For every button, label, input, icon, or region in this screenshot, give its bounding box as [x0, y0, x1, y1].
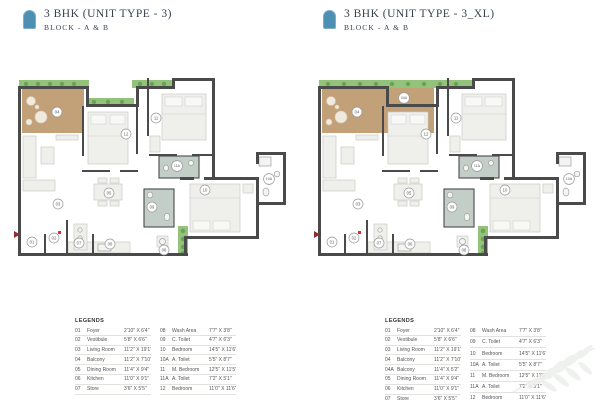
legends-left: LEGENDS 01Foyer2'10" X 6'4"02Vestibule5'…: [75, 318, 237, 395]
room-label: 10A: [564, 174, 575, 185]
legend-cell: 01: [75, 326, 87, 335]
legend-cell: 3'6" X 5'5": [434, 394, 461, 400]
legend-row: 01Foyer2'10" X 6'4": [75, 326, 151, 335]
legend-cell: 11'2" X 19'1": [124, 345, 151, 355]
legend-cell: 2'10" X 6'4": [124, 326, 151, 335]
legend-row: 10Bedroom14'5" X 11'6": [160, 345, 236, 355]
svg-text:02: 02: [352, 236, 357, 241]
svg-text:01: 01: [30, 240, 35, 245]
legend-row: 12Bedroom11'0" X 11'6": [160, 384, 236, 394]
legend-cell: 10: [160, 345, 172, 355]
bed-icon: [150, 94, 206, 152]
legend-cell: 5'8" X 6'6": [124, 335, 151, 345]
legend-cell: 11: [160, 365, 172, 375]
svg-text:04: 04: [55, 110, 60, 115]
plan-header-right: 3 BHK (UNIT TYPE - 3_XL) BLOCK - A & B: [323, 8, 495, 32]
room-label: 10: [500, 185, 510, 195]
svg-text:08: 08: [462, 248, 467, 253]
legend-row: 07Store3'6" X 5'5": [75, 384, 151, 394]
legend-cell: Balcony: [87, 355, 124, 365]
svg-text:11A: 11A: [174, 164, 181, 168]
legend-cell: 05: [75, 365, 87, 375]
legend-row: 04Balcony11'2" X 7'10": [385, 355, 461, 365]
room-label: 02: [49, 233, 59, 243]
legend-cell: 2'10" X 6'4": [434, 326, 461, 335]
legend-cell: Dining Room: [397, 374, 434, 384]
legend-cell: 09: [470, 337, 482, 348]
room-label: 03: [353, 199, 363, 209]
legend-cell: 08: [470, 326, 482, 337]
svg-text:11A: 11A: [474, 164, 481, 168]
room-label: 06: [405, 239, 415, 249]
floor-plan-unit-3: 01 02 03 04 05 06 07 08 09 10 10A 11 11A…: [14, 74, 294, 286]
room-label: 11A: [472, 161, 483, 172]
legend-cell: Bedroom: [172, 384, 209, 394]
room-label: 05: [404, 188, 414, 198]
svg-text:09: 09: [450, 205, 455, 210]
room-label: 12: [121, 129, 131, 139]
room-label: 04A: [399, 93, 410, 104]
legend-cell: Foyer: [87, 326, 124, 335]
svg-text:11: 11: [154, 116, 159, 121]
sofa-icon: [23, 135, 78, 191]
legend-cell: Living Room: [87, 345, 124, 355]
svg-text:05: 05: [107, 191, 112, 196]
legend-cell: 5'5" X 8'7": [209, 355, 236, 365]
legend-cell: Vestibule: [397, 335, 434, 345]
legend-cell: Bedroom: [172, 345, 209, 355]
svg-text:07: 07: [377, 241, 382, 246]
room-label: 09: [447, 202, 457, 212]
legend-row: 08Wash Area7'7" X 3'8": [160, 326, 236, 335]
legend-row: 03Living Room11'2" X 19'1": [75, 345, 151, 355]
svg-text:12: 12: [424, 132, 429, 137]
legend-cell: 11'2" X 19'1": [434, 345, 461, 355]
floor-plan-svg: 01 02 03 04 05 06 07 08 09 10 10A 11 11A…: [14, 74, 294, 286]
room-label: 07: [74, 238, 84, 248]
bed-icon: [450, 94, 506, 152]
bed-icon: [88, 112, 128, 164]
room-label: 08: [159, 245, 169, 255]
svg-text:03: 03: [356, 202, 361, 207]
legend-cell: 12'5" X 11'5": [209, 365, 236, 375]
svg-text:05: 05: [407, 191, 412, 196]
legend-cell: 11A: [160, 374, 172, 384]
arch-door-icon: [323, 10, 336, 29]
door-marker-icon: [358, 231, 361, 234]
legend-cell: 01: [385, 326, 397, 335]
legend-cell: 7'7" X 3'8": [209, 326, 236, 335]
block-subtitle: BLOCK - A & B: [344, 23, 495, 32]
palm-frond-watermark: [505, 330, 600, 400]
svg-text:10: 10: [203, 188, 208, 193]
legend-cell: 04: [75, 355, 87, 365]
legend-cell: Vestibule: [87, 335, 124, 345]
room-label: 06: [105, 239, 115, 249]
legend-cell: M. Bedroom: [172, 365, 209, 375]
legend-row: 05Dining Room11'4" X 9'4": [75, 365, 151, 375]
svg-text:01: 01: [330, 240, 335, 245]
legends-table: 08Wash Area7'7" X 3'8"09C. Toilet4'7" X …: [160, 326, 236, 395]
legend-cell: 07: [75, 384, 87, 394]
legend-row: 06Kitchen11'0" X 9'1": [75, 374, 151, 384]
arch-door-icon: [23, 10, 36, 29]
legend-row: 04Balcony11'2" X 7'10": [75, 355, 151, 365]
legend-cell: 08: [160, 326, 172, 335]
legend-cell: 06: [75, 374, 87, 384]
room-label: 10A: [264, 174, 275, 185]
legend-row: 10AA. Toilet5'5" X 8'7": [160, 355, 236, 365]
legend-cell: Balcony: [397, 365, 434, 375]
svg-text:12: 12: [124, 132, 129, 137]
legend-cell: 11'2" X 7'10": [434, 355, 461, 365]
room-label: 11A: [172, 161, 183, 172]
legend-cell: 12: [470, 393, 482, 400]
legend-cell: 07: [385, 394, 397, 400]
svg-text:04A: 04A: [401, 96, 408, 100]
legend-row: 02Vestibule5'8" X 6'6": [385, 335, 461, 345]
room-label: 11: [451, 113, 461, 123]
legend-cell: 05: [385, 374, 397, 384]
room-label: 05: [104, 188, 114, 198]
legend-cell: 10: [470, 348, 482, 359]
legend-cell: 14'5" X 11'6": [209, 345, 236, 355]
legend-cell: 11: [470, 370, 482, 381]
legends-title: LEGENDS: [75, 318, 237, 324]
legend-cell: 11'0" X 9'1": [124, 374, 151, 384]
legend-cell: Kitchen: [87, 374, 124, 384]
legend-cell: Foyer: [397, 326, 434, 335]
legend-row: 03Living Room11'2" X 19'1": [385, 345, 461, 355]
bed-icon: [490, 184, 553, 232]
svg-text:09: 09: [150, 205, 155, 210]
legend-cell: C. Toilet: [172, 335, 209, 345]
legend-cell: 7'2" X 5'1": [209, 374, 236, 384]
svg-text:10: 10: [503, 188, 508, 193]
legend-cell: Balcony: [397, 355, 434, 365]
legend-cell: 11'2" X 7'10": [124, 355, 151, 365]
svg-text:11: 11: [454, 116, 459, 121]
svg-text:10A: 10A: [266, 177, 273, 181]
legend-cell: 04A: [385, 365, 397, 375]
legend-row: 07Store3'6" X 5'5": [385, 394, 461, 400]
legend-cell: Store: [87, 384, 124, 394]
room-label: 02: [349, 233, 359, 243]
legend-cell: 12: [160, 384, 172, 394]
bed-icon: [190, 184, 253, 232]
legend-row: 01Foyer2'10" X 6'4": [385, 326, 461, 335]
page-title: 3 BHK (UNIT TYPE - 3): [44, 8, 172, 21]
legend-row: 05Dining Room11'4" X 9'4": [385, 374, 461, 384]
room-label: 12: [421, 129, 431, 139]
svg-text:06: 06: [108, 242, 113, 247]
legend-cell: 09: [160, 335, 172, 345]
legend-cell: 03: [75, 345, 87, 355]
legend-row: 11AA. Toilet7'2" X 5'1": [160, 374, 236, 384]
svg-text:06: 06: [408, 242, 413, 247]
legend-cell: 11'4" X 9'4": [124, 365, 151, 375]
room-label: 04: [52, 107, 62, 117]
legend-cell: 5'8" X 6'6": [434, 335, 461, 345]
floor-plan-svg: 01 02 03 04 04A 05 06 07 08 09 10 10A 11…: [314, 74, 594, 286]
legend-cell: Wash Area: [172, 326, 209, 335]
legend-cell: 04: [385, 355, 397, 365]
sofa-icon: [323, 135, 378, 191]
door-marker-icon: [58, 231, 61, 234]
legend-cell: A. Toilet: [172, 374, 209, 384]
legends-table: 01Foyer2'10" X 6'4"02Vestibule5'8" X 6'6…: [385, 326, 461, 400]
legend-cell: 02: [75, 335, 87, 345]
legends-title: LEGENDS: [385, 318, 547, 324]
svg-text:03: 03: [56, 202, 61, 207]
legend-cell: 11'0" X 11'6": [209, 384, 236, 394]
legend-cell: Dining Room: [87, 365, 124, 375]
legends-table: 01Foyer2'10" X 6'4"02Vestibule5'8" X 6'6…: [75, 326, 151, 395]
legend-row: 11M. Bedroom12'5" X 11'5": [160, 365, 236, 375]
legend-row: 06Kitchen11'0" X 9'1": [385, 384, 461, 394]
legend-cell: A. Toilet: [172, 355, 209, 365]
legend-cell: 06: [385, 384, 397, 394]
floor-plan-unit-3xl: 01 02 03 04 04A 05 06 07 08 09 10 10A 11…: [314, 74, 594, 286]
svg-text:07: 07: [77, 241, 82, 246]
legend-cell: 03: [385, 345, 397, 355]
block-subtitle: BLOCK - A & B: [44, 23, 172, 32]
room-label: 08: [459, 245, 469, 255]
bed-icon: [388, 112, 428, 164]
svg-text:08: 08: [162, 248, 167, 253]
legend-cell: Store: [397, 394, 434, 400]
legend-cell: 11'4" X 9'4": [434, 374, 461, 384]
room-label: 04: [352, 107, 362, 117]
page-title: 3 BHK (UNIT TYPE - 3_XL): [344, 8, 495, 21]
room-label: 07: [374, 238, 384, 248]
legend-cell: Living Room: [397, 345, 434, 355]
legend-cell: 3'6" X 5'5": [124, 384, 151, 394]
legend-cell: 02: [385, 335, 397, 345]
legend-cell: 10A: [160, 355, 172, 365]
room-label: 01: [327, 237, 337, 247]
legend-row: 04ABalcony11'4" X 5'2": [385, 365, 461, 375]
svg-text:02: 02: [52, 236, 57, 241]
legend-cell: 10A: [470, 359, 482, 370]
legend-cell: Kitchen: [397, 384, 434, 394]
brochure-page: 3 BHK (UNIT TYPE - 3) BLOCK - A & B 3 BH…: [0, 0, 600, 400]
legend-cell: 11A: [470, 381, 482, 392]
legend-row: 02Vestibule5'8" X 6'6": [75, 335, 151, 345]
room-label: 03: [53, 199, 63, 209]
legend-cell: 11'4" X 5'2": [434, 365, 461, 375]
room-label: 10: [200, 185, 210, 195]
legend-cell: 11'0" X 9'1": [434, 384, 461, 394]
room-label: 01: [27, 237, 37, 247]
legend-cell: 4'7" X 6'3": [209, 335, 236, 345]
room-label: 09: [147, 202, 157, 212]
plan-header-left: 3 BHK (UNIT TYPE - 3) BLOCK - A & B: [23, 8, 172, 32]
svg-text:10A: 10A: [566, 177, 573, 181]
room-label: 11: [151, 113, 161, 123]
svg-text:04: 04: [355, 110, 360, 115]
legend-row: 09C. Toilet4'7" X 6'3": [160, 335, 236, 345]
